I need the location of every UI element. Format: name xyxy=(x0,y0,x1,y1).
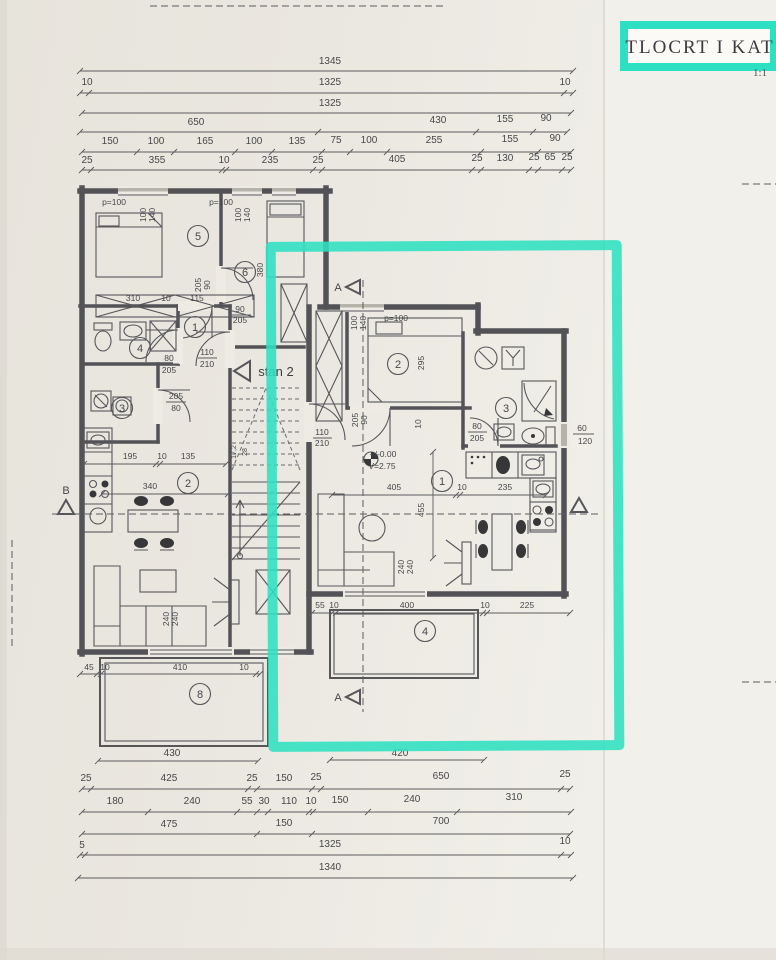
dim-label: 100 xyxy=(148,136,165,147)
dim-label: 430 xyxy=(430,115,447,126)
dim-label: 1345 xyxy=(319,56,342,67)
right-apartment-furniture xyxy=(316,311,556,586)
svg-text:5: 5 xyxy=(195,231,201,243)
dim-label: 150 xyxy=(276,818,293,829)
dim-label: 1325 xyxy=(319,98,342,109)
window-parapet-label: p=100 xyxy=(102,197,126,207)
window-size-label: 60 xyxy=(577,423,587,433)
dim-label: 55 xyxy=(315,600,325,610)
section-lines: A A B xyxy=(52,280,598,712)
double-bed-icon xyxy=(368,318,462,402)
dim-label: 400 xyxy=(400,600,414,610)
dim-label: 10 xyxy=(305,796,317,807)
dim-label: 25 xyxy=(80,773,92,784)
window-size-label: 140 xyxy=(358,316,368,330)
dim-label: 110 xyxy=(281,796,297,807)
svg-text:3: 3 xyxy=(119,403,125,415)
door-size-label: 240 xyxy=(170,612,180,626)
sofa-icon xyxy=(318,494,394,586)
dim-label: 30 xyxy=(258,796,270,807)
dim-label: 90 xyxy=(540,113,552,124)
svg-text:1: 1 xyxy=(192,322,198,334)
dim-label: 75 xyxy=(330,135,342,146)
dim-label: 235 xyxy=(262,155,279,166)
floor-plan-photo: 1345 10 1325 10 1325 650 430 155 90 150 … xyxy=(0,0,776,960)
dining-table-icon xyxy=(128,494,178,550)
highlighted-apartment-box xyxy=(271,245,620,747)
drawing-scale: 1:1 xyxy=(753,67,767,79)
elevation-label: +/-0.00 xyxy=(370,449,397,459)
dim-label: 240 xyxy=(404,794,421,805)
dim-label: 10 xyxy=(480,600,490,610)
dim-label: 45 xyxy=(84,662,94,672)
door-size-label: 110 xyxy=(200,347,214,357)
sofa-icon xyxy=(94,566,206,646)
dim-label: 650 xyxy=(433,771,450,782)
window-icon xyxy=(558,422,570,448)
dim-label: 25 xyxy=(559,769,571,780)
dim-label: 255 xyxy=(426,135,443,146)
window-size-label: 140 xyxy=(242,208,252,222)
window-parapet-label: p=100 xyxy=(209,197,233,207)
dim-label: 10 xyxy=(157,451,167,461)
entry-arrow-icon xyxy=(234,361,250,381)
svg-text:4: 4 xyxy=(137,343,143,355)
svg-text:2: 2 xyxy=(395,359,401,371)
dim-label: 340 xyxy=(143,481,157,491)
dim-label: 10 xyxy=(161,293,171,303)
dim-label: 10 xyxy=(100,662,110,672)
dim-label: 25 xyxy=(310,772,322,783)
dim-label: 475 xyxy=(161,819,178,830)
dim-label: 410 xyxy=(173,662,187,672)
dim-label: 355 xyxy=(149,155,166,166)
height-label: V=2.75 xyxy=(368,461,395,471)
svg-text:1: 1 xyxy=(439,476,445,488)
window-size-label: 140 xyxy=(147,208,157,222)
dim-label: 425 xyxy=(161,773,178,784)
door-size-label: 205 xyxy=(162,365,176,375)
window-icon xyxy=(118,186,168,196)
top-dimensions: 1345 10 1325 10 1325 650 430 155 90 150 … xyxy=(77,56,576,173)
door-size-label: 210 xyxy=(200,359,214,369)
dim-label: 1325 xyxy=(319,77,342,88)
svg-text:6: 6 xyxy=(242,267,248,279)
dim-label: 405 xyxy=(387,482,401,492)
dim-label: 135 xyxy=(289,136,306,147)
door-size-label: 240 xyxy=(405,560,415,574)
dim-label: 90 xyxy=(549,133,561,144)
room-number: 8 xyxy=(190,684,211,705)
dim-label: 135 xyxy=(181,451,195,461)
window-icon xyxy=(232,186,262,196)
balcony-door-icon xyxy=(343,589,427,599)
section-label: A xyxy=(334,692,342,704)
dim-label: 430 xyxy=(164,748,181,759)
dim-label: 25 xyxy=(528,152,540,163)
dim-label: 5 xyxy=(79,840,85,851)
dim-label: 180 xyxy=(107,796,124,807)
dim-label: 100 xyxy=(246,136,263,147)
dim-label: 165 xyxy=(197,136,214,147)
floor-plan-drawing: 1345 10 1325 10 1325 650 430 155 90 150 … xyxy=(0,0,776,960)
dim-label: 700 xyxy=(433,816,450,827)
terrace-right xyxy=(330,610,478,678)
dim-label: 405 xyxy=(389,154,406,165)
dim-label: 10 xyxy=(559,836,571,847)
dim-label: 55 xyxy=(241,796,253,807)
dim-label: 25 xyxy=(246,773,258,784)
dim-label: 380 xyxy=(255,263,265,277)
fan-icon xyxy=(502,347,524,369)
section-marker-icon xyxy=(571,498,587,512)
dim-label: 115 xyxy=(190,293,204,303)
dim-label: 65 xyxy=(544,152,556,163)
dim-label: 310 xyxy=(506,792,523,803)
wardrobe-icon xyxy=(281,284,307,342)
dim-label: 10 xyxy=(413,419,423,429)
dim-label: 25 xyxy=(312,155,324,166)
tv-icon xyxy=(212,578,239,626)
dim-label: 650 xyxy=(188,117,205,128)
shower-icon xyxy=(150,321,176,351)
tv-icon xyxy=(444,540,471,586)
stair-tread-label: 28 xyxy=(242,448,249,456)
dim-label: 235 xyxy=(498,482,512,492)
title-block: TLOCRT I KAT 1:1 xyxy=(624,25,775,79)
dim-label: 150 xyxy=(102,136,119,147)
section-label: A xyxy=(334,282,342,294)
door-size-label: 90 xyxy=(359,415,369,425)
door-size-label: 205 xyxy=(233,315,247,325)
door-size-label: 90 xyxy=(235,304,245,314)
staircase: stan 2 17,2 28 xyxy=(231,361,300,560)
toilet-icon xyxy=(94,323,112,351)
dim-label: 25 xyxy=(81,155,93,166)
window-parapet-label: p=100 xyxy=(384,313,408,323)
room-number: 3 xyxy=(496,398,517,419)
window-size-label: 120 xyxy=(578,436,592,446)
door-size-label: 80 xyxy=(171,403,181,413)
dim-label: 10 xyxy=(329,600,339,610)
dining-table-icon xyxy=(476,514,528,570)
drawing-title: TLOCRT I KAT xyxy=(625,37,774,58)
room-number: 2 xyxy=(388,354,409,375)
kitchen-counter-icon xyxy=(466,452,556,532)
svg-text:8: 8 xyxy=(197,689,203,701)
room-number: 1 xyxy=(432,471,453,492)
dim-label: 155 xyxy=(497,114,514,125)
door-size-label: 205 xyxy=(470,433,484,443)
section-b-marker-icon xyxy=(58,500,74,514)
dim-label: 150 xyxy=(276,773,293,784)
coffee-table-icon xyxy=(140,570,176,592)
dim-label: 10 xyxy=(457,482,467,492)
svg-text:2: 2 xyxy=(185,478,191,490)
dim-label: 25 xyxy=(561,152,573,163)
dim-label: 10 xyxy=(218,155,230,166)
room-number: 4 xyxy=(415,621,436,642)
dim-label: 150 xyxy=(332,795,349,806)
dim-label: 295 xyxy=(416,356,426,370)
dim-label: 1325 xyxy=(319,839,342,850)
dim-label: 10 xyxy=(239,662,249,672)
door-size-label: 210 xyxy=(315,438,329,448)
door-size-label: 205 xyxy=(169,391,183,401)
dim-label: 455 xyxy=(416,503,426,517)
door-size-label: 80 xyxy=(472,421,482,431)
section-a-marker-icon xyxy=(346,690,360,704)
dim-label: 195 xyxy=(123,451,137,461)
dim-label: 10 xyxy=(81,77,93,88)
dim-label: 10 xyxy=(559,77,571,88)
window-icon xyxy=(340,302,384,312)
dim-label: 155 xyxy=(502,134,519,145)
shower-icon xyxy=(522,381,556,421)
boiler-icon xyxy=(475,347,497,369)
balcony-door-icon xyxy=(148,647,234,657)
door-size-label: 110 xyxy=(315,427,329,437)
dim-label: 240 xyxy=(184,796,201,807)
door-size-label: 80 xyxy=(164,353,174,363)
window-icon xyxy=(272,186,296,196)
room-number: 4 xyxy=(130,338,151,359)
dim-label: 25 xyxy=(471,153,483,164)
toilet-icon xyxy=(522,427,555,445)
dim-label: 225 xyxy=(520,600,534,610)
room-number: 5 xyxy=(188,226,209,247)
dim-label: 310 xyxy=(126,293,140,303)
dim-label: 130 xyxy=(497,153,514,164)
section-label: B xyxy=(62,485,69,497)
svg-text:3: 3 xyxy=(503,403,509,415)
door-size-label: 90 xyxy=(202,280,212,290)
dim-label: 100 xyxy=(361,135,378,146)
dim-label: 1340 xyxy=(319,862,342,873)
svg-text:4: 4 xyxy=(422,626,428,638)
section-a-marker-icon xyxy=(346,280,360,294)
stair-riser-label: 17,2 xyxy=(231,445,238,459)
room-number: 2 xyxy=(178,473,199,494)
